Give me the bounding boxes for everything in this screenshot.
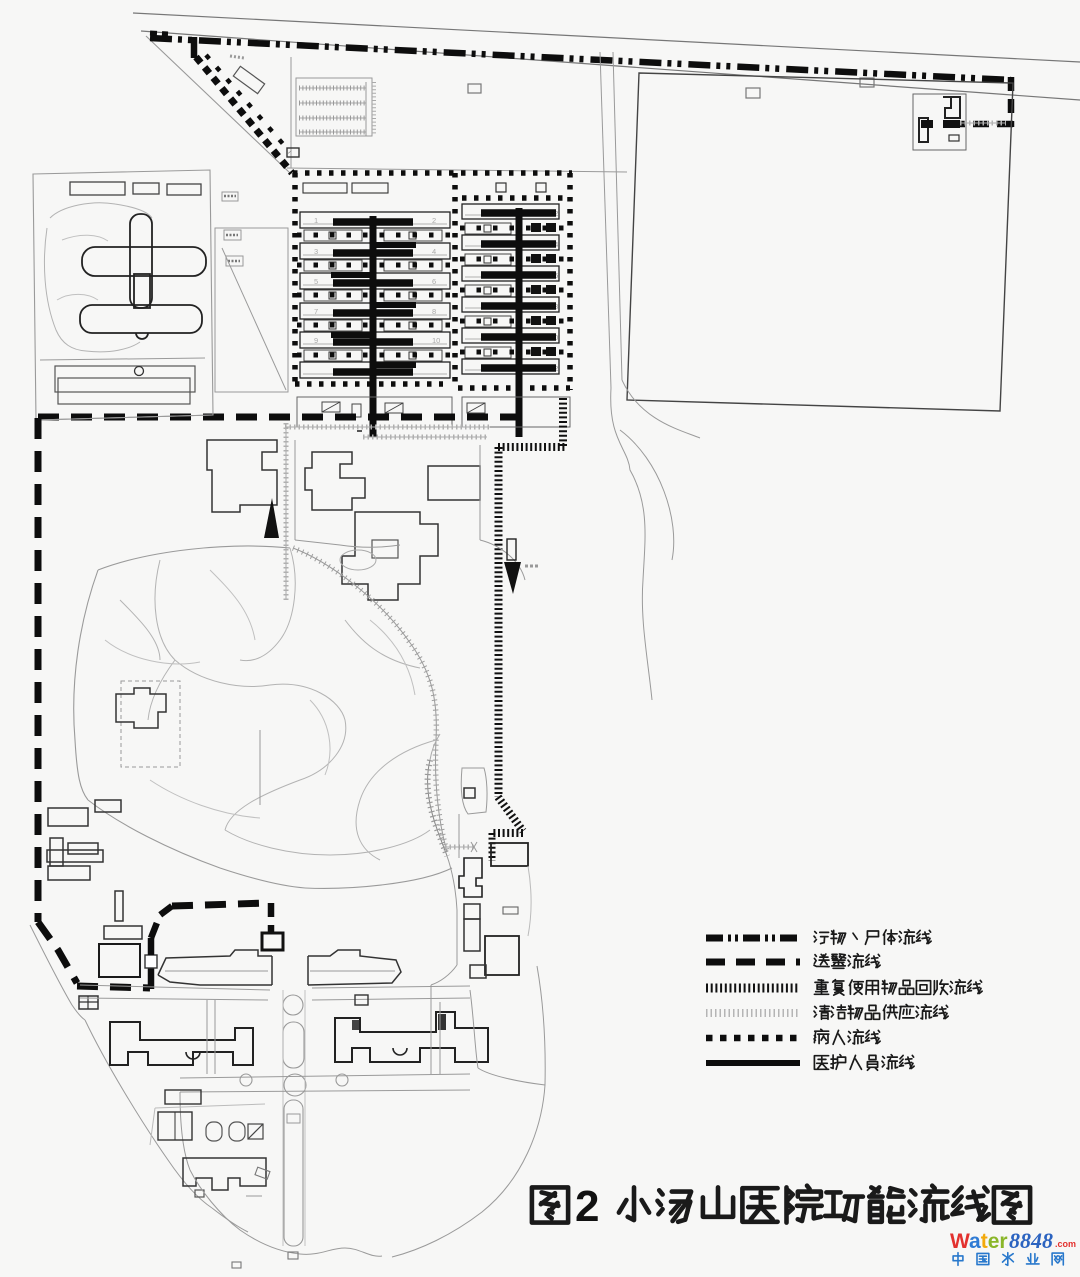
svg-text:4: 4 xyxy=(432,247,436,256)
svg-text:8: 8 xyxy=(432,307,436,316)
svg-text:3: 3 xyxy=(314,247,318,256)
svg-text:9: 9 xyxy=(314,336,318,345)
svg-text:7: 7 xyxy=(314,307,318,316)
svg-text:1: 1 xyxy=(314,216,318,225)
svg-text:2: 2 xyxy=(575,1182,599,1231)
svg-text:10: 10 xyxy=(432,336,440,345)
svg-text:Water: Water xyxy=(950,1230,1008,1253)
svg-text:8848: 8848 xyxy=(1009,1228,1053,1253)
svg-text:6: 6 xyxy=(432,277,436,286)
svg-text:2: 2 xyxy=(432,216,436,225)
svg-text:.com: .com xyxy=(1055,1239,1076,1249)
svg-text:5: 5 xyxy=(314,277,318,286)
